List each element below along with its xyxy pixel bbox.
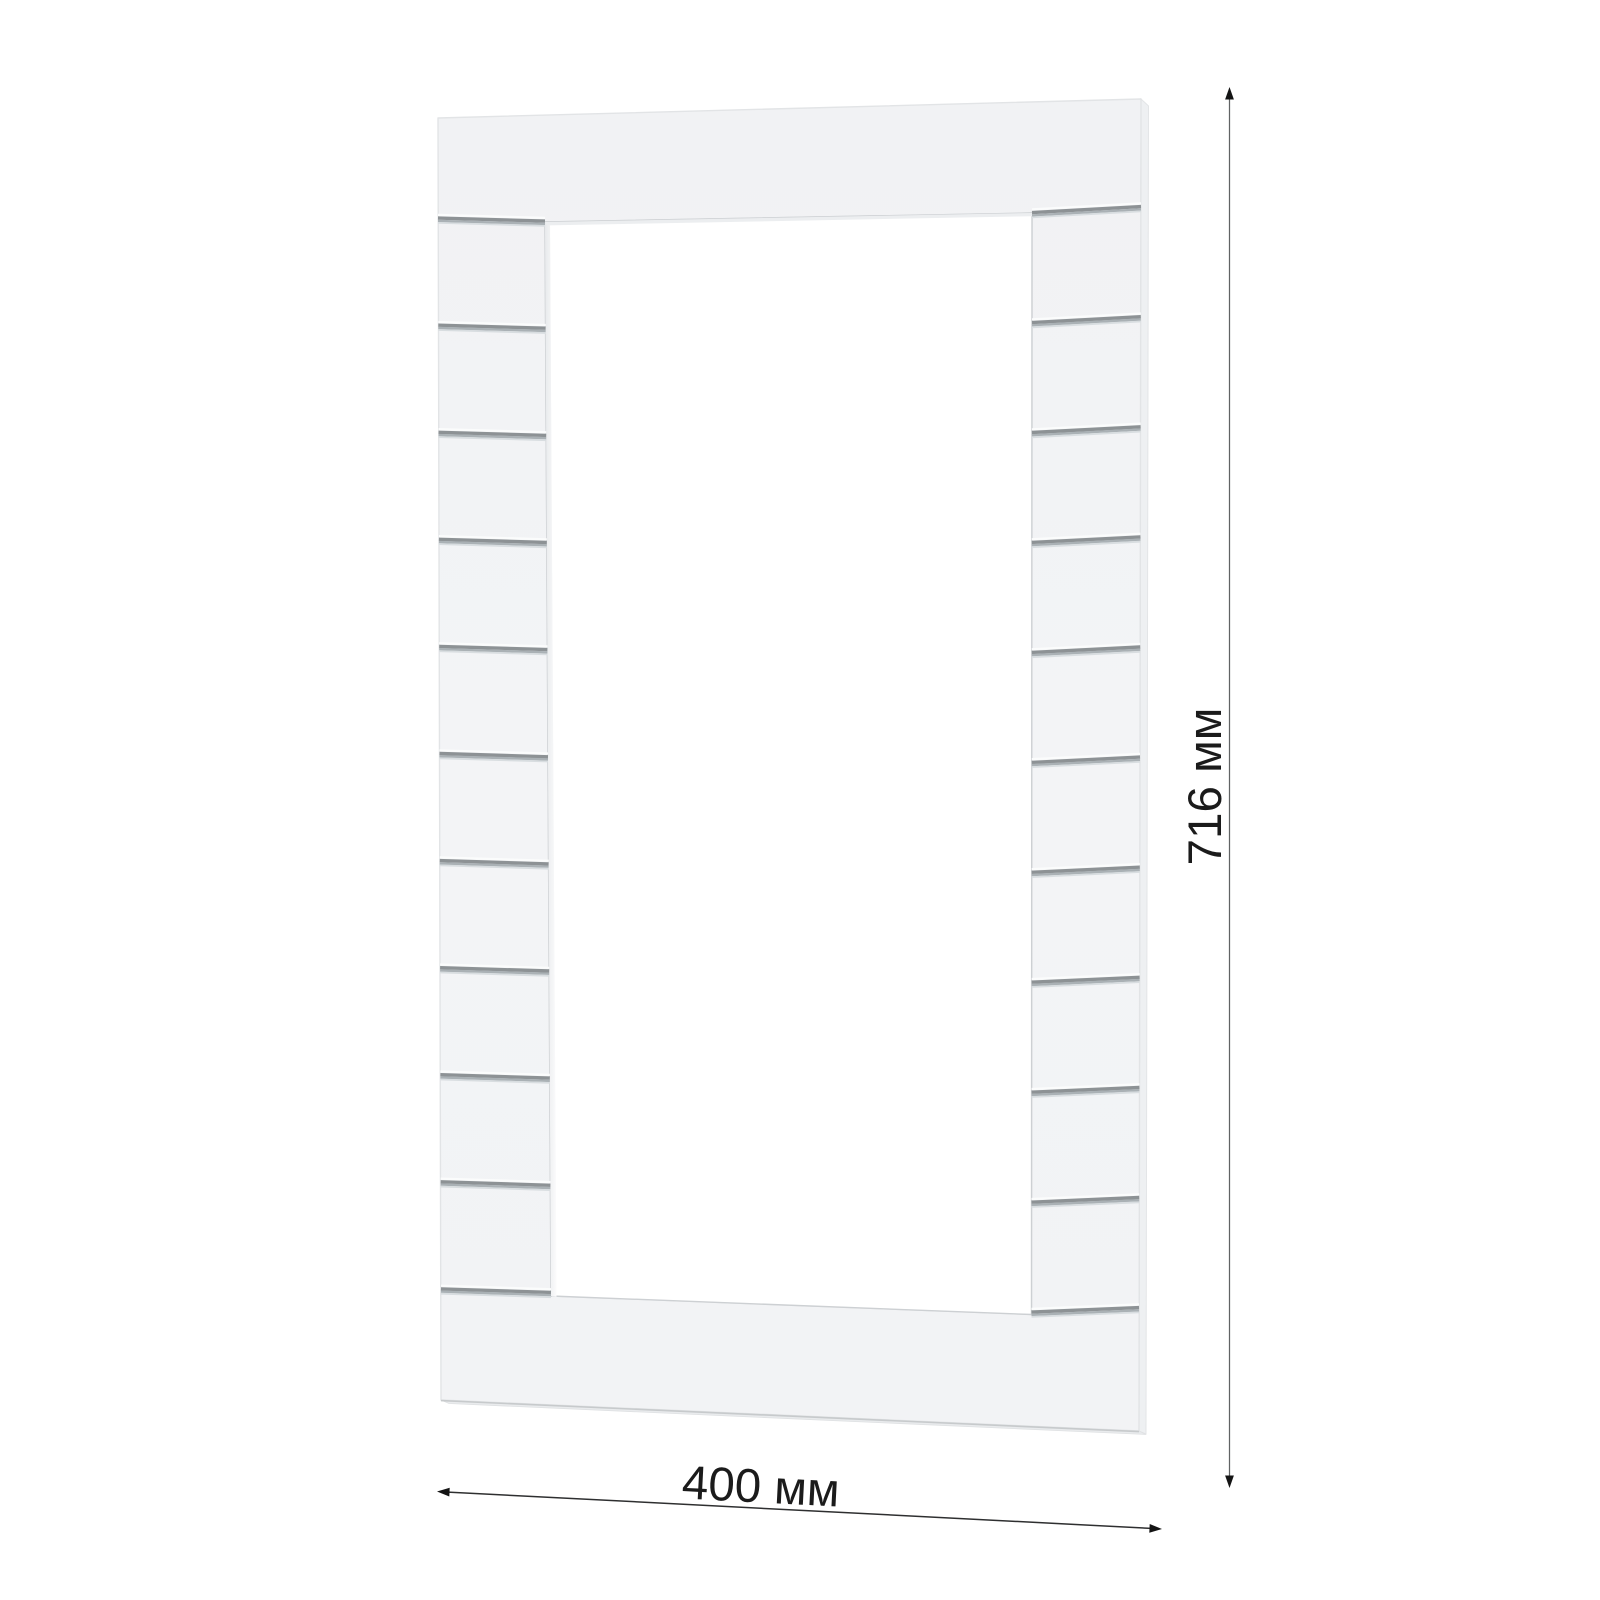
svg-text:400 мм: 400 мм <box>681 1456 841 1517</box>
svg-text:716 мм: 716 мм <box>1179 708 1232 866</box>
